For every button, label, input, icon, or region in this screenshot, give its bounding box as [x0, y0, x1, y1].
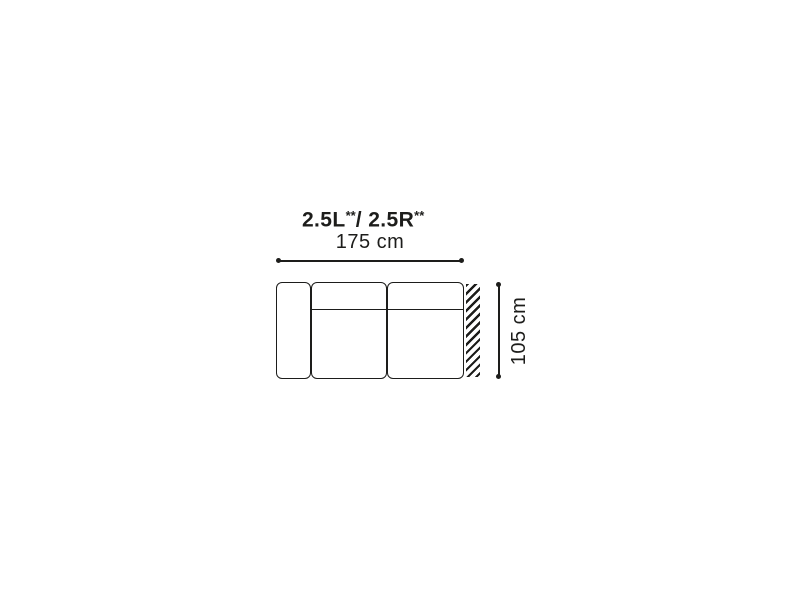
model-title-right: 2.5R: [368, 209, 414, 232]
model-title-left-asterisks: **: [346, 208, 356, 223]
sofa-dimension-diagram: 2.5L**/ 2.5R** 175 cm 105 cm: [0, 0, 800, 600]
depth-dimension-label: 105 cm: [507, 281, 531, 381]
model-title-separator: /: [356, 209, 368, 232]
backrest-divider-line: [387, 309, 464, 310]
open-end-hatch: [466, 284, 480, 377]
model-title-left: 2.5L: [302, 209, 346, 232]
width-dimension-line: [278, 260, 462, 262]
width-dimension-label: 175 cm: [336, 231, 405, 254]
sofa-left-armrest: [276, 282, 311, 379]
depth-dimension-line: [498, 284, 500, 377]
dimension-endpoint-dot-left: [276, 258, 281, 263]
dimension-endpoint-dot-top: [496, 282, 501, 287]
dimension-endpoint-dot-right: [459, 258, 464, 263]
dimension-endpoint-dot-bottom: [496, 374, 501, 379]
model-title-right-asterisks: **: [414, 208, 424, 223]
sofa-seat-module-2: [387, 282, 464, 379]
backrest-divider-line: [311, 309, 387, 310]
sofa-seat-module-1: [311, 282, 387, 379]
